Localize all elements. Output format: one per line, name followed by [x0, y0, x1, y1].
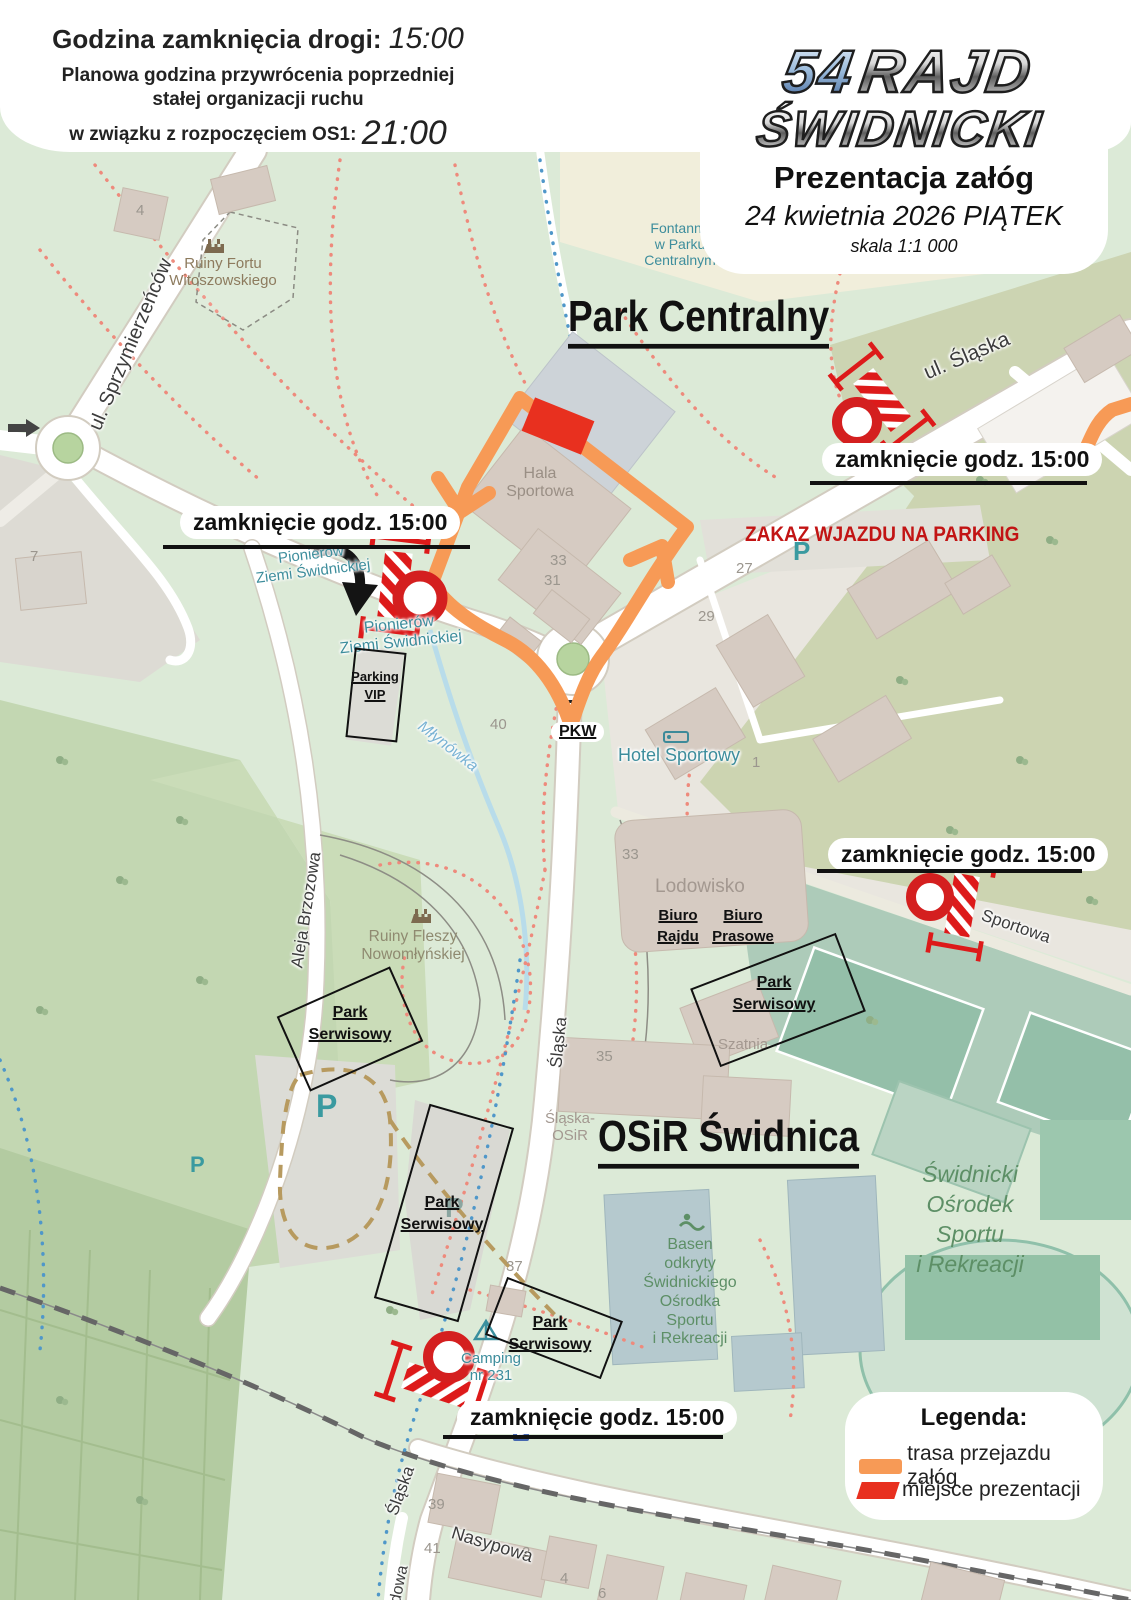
- area-title-osir: OSiR Świdnica: [598, 1112, 859, 1168]
- service-park-label: Park Serwisowy: [400, 1192, 484, 1235]
- building-number: 7: [30, 548, 38, 565]
- place-label-line: OSiR: [538, 1127, 602, 1144]
- event-card: 54 RAJD ŚWIDNICKI Prezentacja załóg 24 k…: [700, 16, 1108, 274]
- building-number: 1: [752, 754, 760, 771]
- restore-info: Planowa godzina przywrócenia poprzedniej…: [18, 64, 498, 154]
- place-label-line: Ośrodka: [632, 1293, 748, 1312]
- building-number: 40: [490, 716, 507, 733]
- place-label-slaska-osir: Śląska- OSiR: [538, 1110, 602, 1145]
- place-label-hala-sportowa: Hala Sportowa: [505, 465, 575, 502]
- parking-p-symbol: P: [316, 1088, 337, 1125]
- restore-line: stałej organizacji ruchu: [18, 88, 498, 112]
- label-line: Park: [300, 1002, 400, 1024]
- building-number: 31: [544, 572, 561, 589]
- place-label-line: Świdnicki: [900, 1160, 1040, 1190]
- no-entry-sign-icon: [911, 878, 949, 916]
- closure-headline: Godzina zamknięcia drogi: 15:00: [18, 22, 498, 56]
- closure-label-east: zamknięcie godz. 15:00: [828, 838, 1108, 871]
- service-park-label: Park Serwisowy: [300, 1002, 400, 1045]
- place-label-hotel-sportowy: Hotel Sportowy: [618, 745, 740, 766]
- place-label-line: Hala: [505, 465, 575, 483]
- building-number: 6: [598, 1585, 606, 1600]
- place-label-line: Ośrodek: [900, 1190, 1040, 1220]
- no-entry-sign-icon: [837, 402, 877, 442]
- rally-logo: 54 RAJD ŚWIDNICKI: [692, 42, 1116, 154]
- rally-number: 54: [779, 38, 859, 105]
- closure-underline: [163, 545, 470, 549]
- closure-label: Godzina zamknięcia drogi:: [52, 24, 381, 54]
- restore-time: 21:00: [362, 114, 447, 152]
- rally-word: RAJD: [856, 38, 1037, 105]
- building-number: 39: [428, 1496, 445, 1513]
- place-label-fort-ruins: Ruiny Fortu Witoszowskiego: [163, 255, 283, 290]
- label-line: Parking: [344, 668, 406, 686]
- label-line: Park: [400, 1192, 484, 1214]
- building-number: 27: [736, 560, 753, 577]
- biuro-prasowe-label: Biuro Prasowe: [710, 905, 776, 947]
- header-info: Godzina zamknięcia drogi: 15:00 Planowa …: [18, 22, 498, 154]
- closure-label-northeast: zamknięcie godz. 15:00: [822, 443, 1102, 476]
- service-park-label: Park Serwisowy: [502, 1312, 598, 1355]
- place-label-line: i Rekreacji: [632, 1330, 748, 1349]
- label-line: Park: [502, 1312, 598, 1334]
- no-parking-warning: ZAKAZ WJAZDU NA PARKING: [745, 523, 1019, 548]
- place-label-line: Ruiny Fleszy: [348, 928, 478, 946]
- closure-time: 15:00: [389, 22, 464, 55]
- place-label-line: Nowomłyńskiej: [348, 946, 478, 964]
- restore-line: Planowa godzina przywrócenia poprzedniej: [18, 64, 498, 88]
- event-subtitle: Prezentacja załóg: [700, 160, 1108, 196]
- place-label-line: Sportowa: [505, 483, 575, 501]
- label-line: VIP: [344, 686, 406, 704]
- place-label-line: odkryty: [632, 1255, 748, 1274]
- closure-underline: [443, 1435, 723, 1439]
- closure-label-west: zamknięcie godz. 15:00: [180, 506, 460, 539]
- building-number: 29: [698, 608, 715, 625]
- parking-p-symbol: P: [190, 1152, 205, 1178]
- label-line: Serwisowy: [400, 1214, 484, 1236]
- closure-label-south: zamknięcie godz. 15:00: [457, 1401, 737, 1434]
- place-label-line: Świdnickiego: [632, 1274, 748, 1293]
- place-label-basen: Basen odkryty Świdnickiego Ośrodka Sport…: [632, 1236, 748, 1349]
- route-color-swatch: [859, 1459, 902, 1474]
- area-title-park-centralny: Park Centralny: [568, 292, 829, 348]
- label-line: Serwisowy: [300, 1024, 400, 1046]
- building-number: 37: [506, 1258, 523, 1275]
- service-park-label: Park Serwisowy: [728, 972, 820, 1015]
- label-line: Serwisowy: [502, 1334, 598, 1356]
- legend-title: Legenda:: [845, 1404, 1103, 1432]
- place-label-lodowisko: Lodowisko: [655, 876, 745, 898]
- place-label-line: Basen: [632, 1236, 748, 1255]
- place-label-line: Ruiny Fortu: [163, 255, 283, 272]
- place-label-line: i Rekreacji: [900, 1250, 1040, 1280]
- label-line: Biuro: [650, 905, 706, 926]
- place-label-line: Śląska-: [538, 1110, 602, 1127]
- place-label-line: nr 231: [448, 1367, 534, 1384]
- presentation-color-swatch: [856, 1482, 900, 1499]
- map-scale: skala 1:1 000: [700, 236, 1108, 257]
- building-number: 4: [560, 1570, 568, 1587]
- building-number: 35: [596, 1048, 613, 1065]
- building-number: 33: [622, 846, 639, 863]
- event-date: 24 kwietnia 2026 PIĄTEK: [700, 200, 1108, 232]
- closure-underline: [817, 869, 1082, 873]
- legend-presentation-label: miejsce prezentacji: [902, 1478, 1081, 1502]
- biuro-rajdu-label: Biuro Rajdu: [650, 905, 706, 947]
- label-line: Rajdu: [650, 926, 706, 947]
- label-line: Serwisowy: [728, 994, 820, 1016]
- place-label-line: Witoszowskiego: [163, 272, 283, 289]
- place-label-line: Sportu: [632, 1312, 748, 1331]
- legend-row-presentation: miejsce prezentacji: [859, 1478, 1081, 1502]
- parking-vip-label: Parking VIP: [344, 668, 406, 703]
- building-number: 41: [424, 1540, 441, 1557]
- restore-line: w związku z rozpoczęciem OS1: 21:00: [18, 112, 498, 155]
- place-label-osrodek: Świdnicki Ośrodek Sportu i Rekreacji: [900, 1160, 1040, 1280]
- pkw-point-label: PKW: [551, 722, 604, 742]
- label-line: Prasowe: [710, 926, 776, 947]
- place-label-line: Sportu: [900, 1220, 1040, 1250]
- restore-line-text: w związku z rozpoczęciem OS1:: [69, 124, 356, 145]
- place-label-fleszy-ruins: Ruiny Fleszy Nowomłyńskiej: [348, 928, 478, 964]
- rally-name: ŚWIDNICKI: [692, 104, 1107, 154]
- building-number: 33: [550, 552, 567, 569]
- label-line: Park: [728, 972, 820, 994]
- poster-page: ul. Śląska ul. Sprzymierzeńców Aleja Brz…: [0, 0, 1131, 1600]
- building-number: 4: [136, 202, 144, 219]
- building-number: 2: [522, 1544, 530, 1561]
- legend: Legenda: trasa przejazdu załóg miejsce p…: [845, 1392, 1103, 1520]
- closure-underline: [810, 481, 1087, 485]
- label-line: Biuro: [710, 905, 776, 926]
